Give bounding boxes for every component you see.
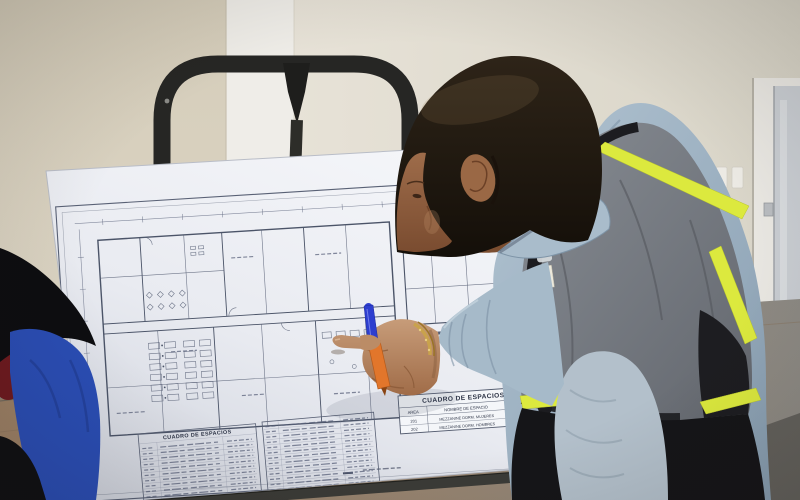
photo-scene: CUADRO DE ESPACIOS xyxy=(0,0,800,500)
scene-canvas: CUADRO DE ESPACIOS xyxy=(0,0,800,500)
vignette-overlay xyxy=(0,0,800,500)
